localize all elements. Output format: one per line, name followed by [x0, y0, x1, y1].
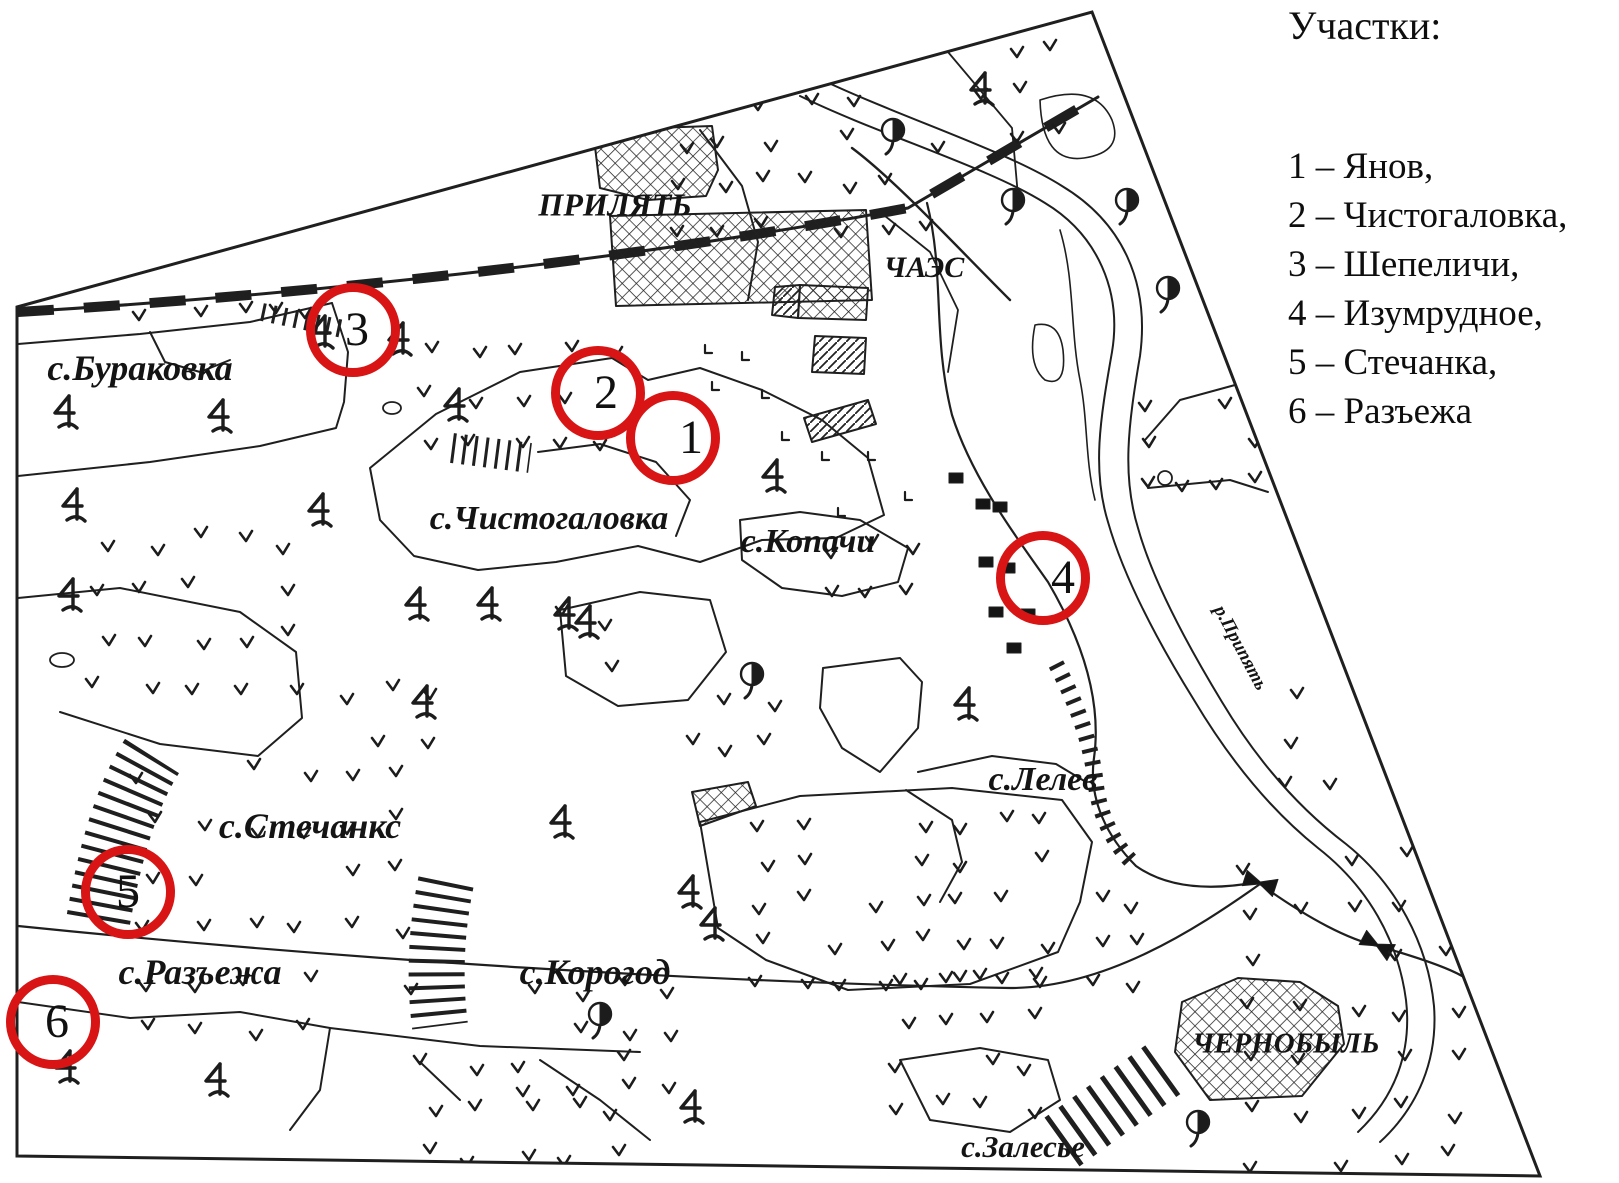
building-icon	[976, 499, 990, 509]
legend-item-name: – Стечанка,	[1307, 342, 1498, 383]
building-icon	[949, 473, 963, 483]
legend-item: 6 – Разъежа	[1288, 387, 1567, 436]
legend: Участки: 1 – Янов,2 – Чистогаловка,3 – Ш…	[1288, 2, 1567, 436]
legend-item-name: – Янов,	[1307, 146, 1434, 187]
legend-item-name: – Шепеличи,	[1307, 244, 1520, 285]
building-icon	[1001, 563, 1015, 573]
legend-item-number: 6	[1288, 391, 1307, 432]
legend-item-number: 1	[1288, 146, 1307, 187]
building-icon	[993, 502, 1007, 512]
legend-item: 3 – Шепеличи,	[1288, 240, 1567, 289]
meadow-grass-icon	[667, 95, 679, 105]
legend-item-name: – Изумрудное,	[1307, 293, 1543, 334]
legend-item: 2 – Чистогаловка,	[1288, 191, 1567, 240]
building-icon	[979, 557, 993, 567]
legend-item-name: – Разъежа	[1307, 391, 1473, 432]
meadow-grass-icon	[714, 86, 726, 96]
legend-item: 1 – Янов,	[1288, 142, 1567, 191]
legend-item: 5 – Стечанка,	[1288, 338, 1567, 387]
building-icon	[989, 607, 1003, 617]
legend-item-number: 4	[1288, 293, 1307, 334]
legend-item-number: 2	[1288, 195, 1307, 236]
meadow-grass-icon	[1437, 853, 1449, 863]
legend-item-number: 5	[1288, 342, 1307, 383]
legend-item-name: – Чистогаловка,	[1307, 195, 1568, 236]
legend-title: Участки:	[1288, 2, 1567, 50]
building-icon	[1021, 609, 1035, 619]
legend-item: 4 – Изумрудное,	[1288, 289, 1567, 338]
legend-items: 1 – Янов,2 – Чистогаловка,3 – Шепеличи,4…	[1288, 142, 1567, 436]
chernobyl-zone-map-figure: ПРИЛЯТЬЧАЭСс.Бураковкас.Чистогаловкас.Ко…	[0, 0, 1619, 1183]
building-icon	[1007, 643, 1021, 653]
meadow-grass-icon	[1442, 912, 1454, 922]
legend-item-number: 3	[1288, 244, 1307, 285]
